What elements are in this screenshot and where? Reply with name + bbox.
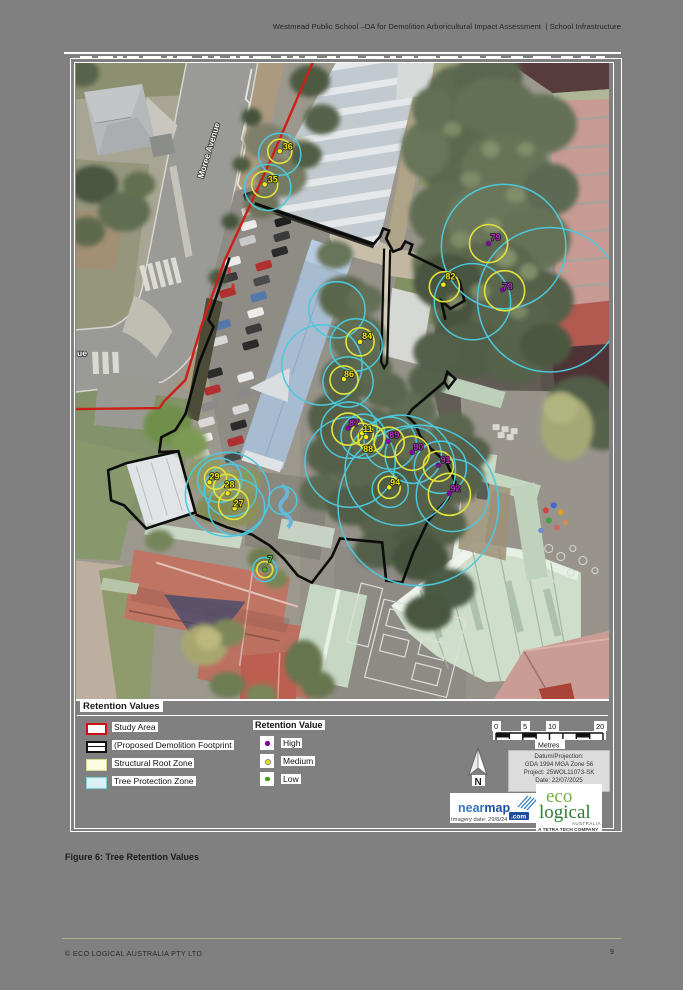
svg-text:logical: logical [539, 802, 591, 823]
svg-text:84: 84 [362, 331, 372, 341]
svg-text:10: 10 [548, 722, 556, 731]
svg-text:ue: ue [77, 348, 87, 358]
svg-text:11: 11 [363, 424, 373, 434]
svg-text:35: 35 [268, 174, 278, 184]
svg-text:nearmap: nearmap [458, 801, 510, 815]
svg-text:0: 0 [494, 722, 498, 731]
svg-text:36: 36 [283, 141, 293, 151]
svg-text:28: 28 [225, 479, 235, 489]
svg-text:A TETRA TECH COMPANY: A TETRA TECH COMPANY [538, 827, 599, 832]
svg-text:82: 82 [445, 272, 455, 282]
svg-text:Metres: Metres [538, 743, 560, 750]
svg-text:78: 78 [503, 282, 513, 292]
svg-text:91: 91 [440, 455, 450, 465]
svg-text:29: 29 [210, 471, 220, 481]
svg-text:89: 89 [389, 430, 399, 440]
svg-text:.com: .com [511, 814, 526, 821]
svg-text:N: N [475, 777, 482, 787]
svg-text:87: 87 [349, 418, 359, 428]
svg-text:90: 90 [413, 442, 423, 452]
svg-text:5: 5 [523, 722, 527, 731]
svg-text:79: 79 [491, 233, 501, 243]
svg-text:92: 92 [450, 483, 460, 493]
svg-text:94: 94 [390, 477, 400, 487]
svg-text:AUSTRALIA: AUSTRALIA [572, 821, 601, 826]
svg-text:86: 86 [344, 369, 354, 379]
svg-text:88: 88 [363, 444, 373, 454]
svg-text:7: 7 [268, 555, 273, 565]
svg-text:27: 27 [234, 498, 244, 508]
svg-text:20: 20 [596, 722, 604, 731]
svg-text:Imagery date: 29/8/24: Imagery date: 29/8/24 [451, 817, 508, 823]
